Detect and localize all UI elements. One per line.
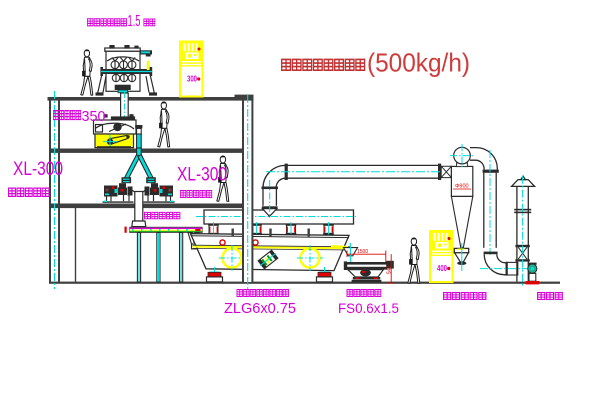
svg-text:540: 540 [387, 265, 393, 274]
svg-text:XL-300: XL-300 [177, 164, 227, 186]
svg-text:FS0.6x1.5: FS0.6x1.5 [338, 300, 399, 316]
svg-text:ZLG6x0.75: ZLG6x0.75 [224, 300, 296, 317]
svg-text:1500: 1500 [357, 249, 368, 255]
svg-text:300: 300 [187, 74, 197, 84]
svg-text:1.5: 1.5 [128, 13, 141, 30]
svg-text:350: 350 [82, 108, 106, 125]
svg-text:(500kg/h): (500kg/h) [367, 48, 470, 78]
svg-text:XL-300: XL-300 [13, 158, 63, 180]
svg-text:400: 400 [437, 263, 447, 273]
